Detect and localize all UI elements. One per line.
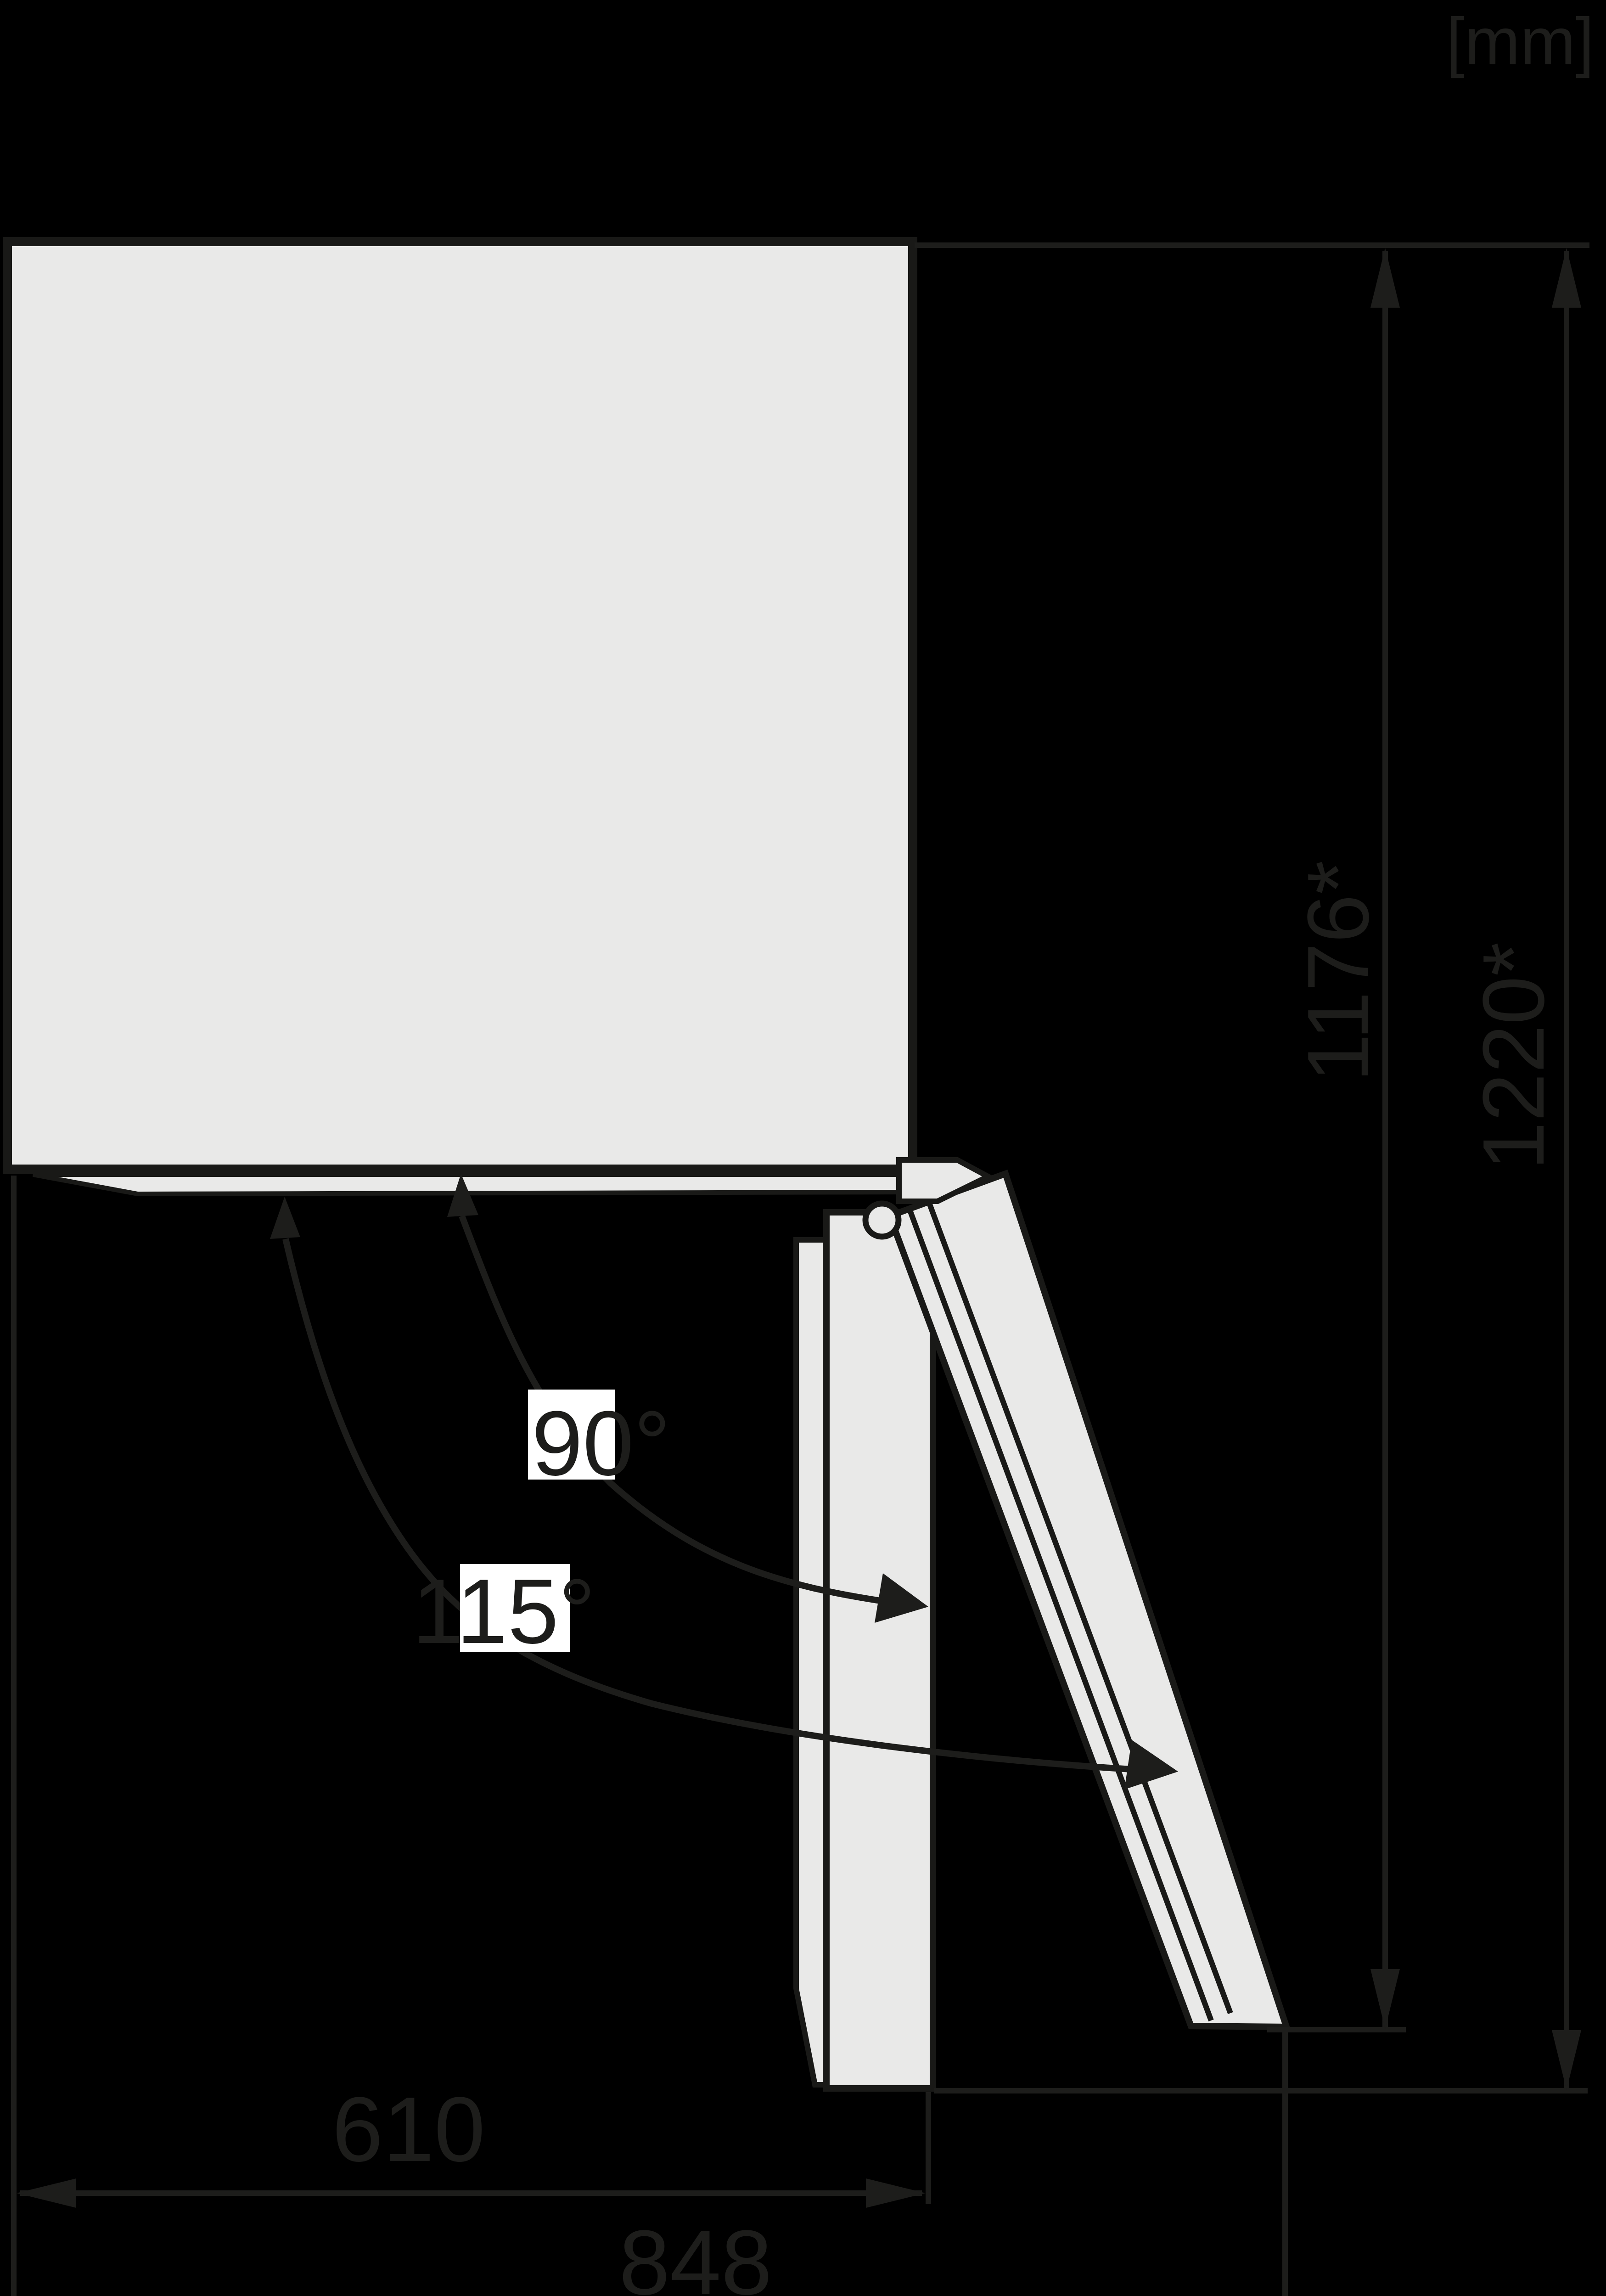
dimension-610-label: 610 (332, 2078, 485, 2181)
door-90-body (826, 1212, 933, 2088)
angle-90-label: 90° (532, 1392, 670, 1495)
appliance-cabinet-top-view (7, 242, 913, 1169)
dimension-1176-label: 1176* (1290, 861, 1387, 1082)
angle-label-90: 90° (528, 1390, 670, 1495)
angle-115-label: 115° (412, 1560, 595, 1663)
hinge-pin (865, 1204, 898, 1237)
closed-door-front-edge (33, 1175, 915, 1194)
dimension-1220-label: 1220* (1465, 942, 1562, 1171)
door-open-90 (796, 1212, 933, 2088)
door-90-front-panel (796, 1240, 825, 2085)
angle-label-115: 115° (412, 1560, 595, 1663)
unit-label: [mm] (1446, 4, 1594, 79)
door-swing-dimension-diagram: 90° 115° 1176* 1220* 610 848 [mm] (0, 0, 1606, 2296)
dimension-848-label: 848 (619, 2212, 772, 2296)
